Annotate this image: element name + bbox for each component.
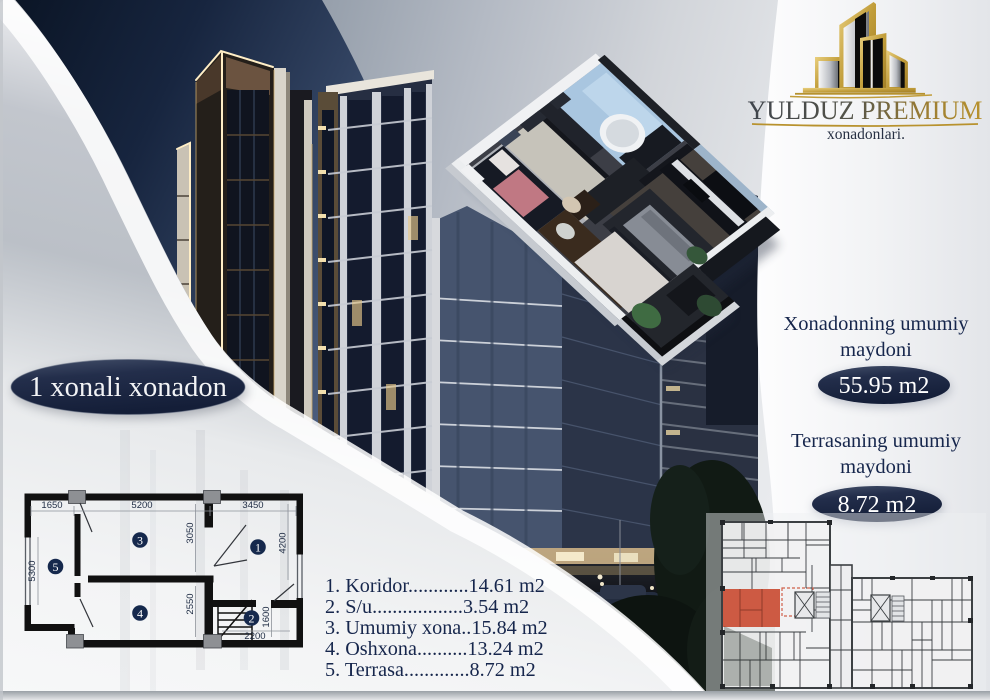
svg-text:2550: 2550 [185,593,196,614]
svg-text:55.95 m2: 55.95 m2 [839,373,930,399]
svg-text:3. Umumiy xona..15.84 m2: 3. Umumiy xona..15.84 m2 [325,617,548,639]
svg-text:1. Koridor............14.61 m2: 1. Koridor............14.61 m2 [325,575,545,597]
svg-text:1600: 1600 [261,606,272,627]
svg-text:4: 4 [137,607,143,621]
svg-text:1: 1 [255,541,261,555]
svg-text:xonadonlari.: xonadonlari. [827,126,905,143]
svg-text:5300: 5300 [27,560,38,581]
svg-text:1 xonali xonadon: 1 xonali xonadon [29,372,227,403]
svg-text:3050: 3050 [185,522,196,543]
svg-text:Terrasaning umumiy: Terrasaning umumiy [791,430,962,452]
svg-text:5. Terrasa.............8.72 m2: 5. Terrasa.............8.72 m2 [325,659,536,681]
svg-text:Xonadonning umumiy: Xonadonning umumiy [783,313,969,335]
svg-text:2: 2 [249,612,255,626]
svg-text:maydoni: maydoni [840,339,912,361]
svg-text:5200: 5200 [131,500,152,511]
svg-text:YULDUZ PREMIUM: YULDUZ PREMIUM [748,96,983,125]
svg-text:4200: 4200 [278,532,289,553]
svg-text:5: 5 [53,560,59,574]
svg-text:2. S/u..................3.54 m: 2. S/u..................3.54 m2 [325,596,529,618]
svg-text:4. Oshxona..........13.24 m2: 4. Oshxona..........13.24 m2 [325,638,544,660]
svg-text:3: 3 [137,534,143,548]
svg-text:3450: 3450 [242,500,263,511]
svg-text:2200: 2200 [244,631,265,642]
svg-text:maydoni: maydoni [840,456,912,478]
svg-text:1650: 1650 [41,500,62,511]
